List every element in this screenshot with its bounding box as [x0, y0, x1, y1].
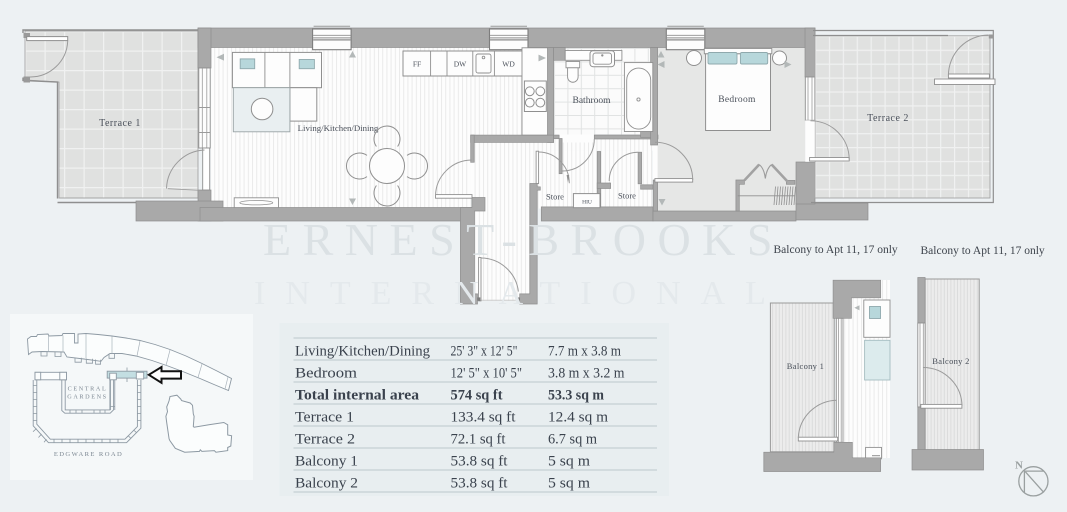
svg-text:12.4 sq m: 12.4 sq m	[548, 409, 608, 426]
svg-text:HIU: HIU	[582, 200, 592, 206]
svg-text:3.8 m x 3.2 m: 3.8 m x 3.2 m	[548, 365, 625, 382]
svg-text:EDGWARE ROAD: EDGWARE ROAD	[54, 451, 123, 458]
svg-text:Balcony 2: Balcony 2	[932, 356, 969, 366]
svg-text:Terrace 2: Terrace 2	[867, 113, 909, 124]
svg-text:INTERNATIONAL: INTERNATIONAL	[254, 275, 786, 312]
svg-text:Bedroom: Bedroom	[718, 95, 756, 105]
svg-text:CENTRAL: CENTRAL	[68, 386, 108, 393]
svg-text:Store: Store	[618, 191, 636, 201]
svg-text:Terrace 2: Terrace 2	[295, 431, 355, 448]
svg-text:Total internal area: Total internal area	[295, 387, 419, 404]
svg-text:53.8 sq ft: 53.8 sq ft	[451, 453, 509, 470]
svg-text:Balcony 1: Balcony 1	[295, 453, 358, 470]
svg-text:72.1 sq ft: 72.1 sq ft	[451, 431, 507, 448]
svg-text:Bedroom: Bedroom	[295, 365, 357, 382]
svg-text:Living/Kitchen/Dining: Living/Kitchen/Dining	[298, 123, 379, 133]
svg-text:Balcony to Apt 11, 17 only: Balcony to Apt 11, 17 only	[774, 244, 898, 256]
svg-text:Living/Kitchen/Dining: Living/Kitchen/Dining	[295, 343, 430, 360]
svg-text:Balcony 2: Balcony 2	[295, 475, 358, 492]
svg-text:133.4 sq ft: 133.4 sq ft	[451, 409, 517, 426]
svg-text:ERNEST-BROOKS: ERNEST-BROOKS	[263, 214, 784, 265]
svg-text:GARDENS: GARDENS	[67, 394, 107, 401]
svg-text:12' 5" x 10' 5": 12' 5" x 10' 5"	[451, 365, 523, 382]
svg-text:DW: DW	[454, 60, 467, 69]
svg-text:5 sq m: 5 sq m	[548, 453, 590, 470]
svg-text:7.7 m x 3.8 m: 7.7 m x 3.8 m	[548, 343, 621, 360]
svg-text:53.8 sq ft: 53.8 sq ft	[451, 475, 509, 492]
svg-text:25' 3" x 12' 5": 25' 3" x 12' 5"	[451, 343, 518, 360]
svg-text:WD: WD	[502, 60, 515, 69]
svg-text:Bathroom: Bathroom	[573, 96, 612, 106]
svg-text:5 sq m: 5 sq m	[548, 475, 590, 492]
svg-text:Balcony to Apt 11, 17 only: Balcony to Apt 11, 17 only	[921, 245, 1045, 257]
svg-text:FF: FF	[413, 60, 421, 69]
svg-text:N: N	[1015, 460, 1023, 472]
svg-text:53.3 sq m: 53.3 sq m	[548, 387, 604, 404]
svg-text:Terrace 1: Terrace 1	[295, 409, 354, 426]
svg-text:Store: Store	[546, 192, 564, 202]
svg-text:6.7 sq m: 6.7 sq m	[548, 431, 597, 448]
svg-text:Balcony 1: Balcony 1	[787, 361, 824, 371]
svg-text:574 sq ft: 574 sq ft	[451, 387, 503, 404]
svg-text:Terrace 1: Terrace 1	[99, 118, 141, 129]
